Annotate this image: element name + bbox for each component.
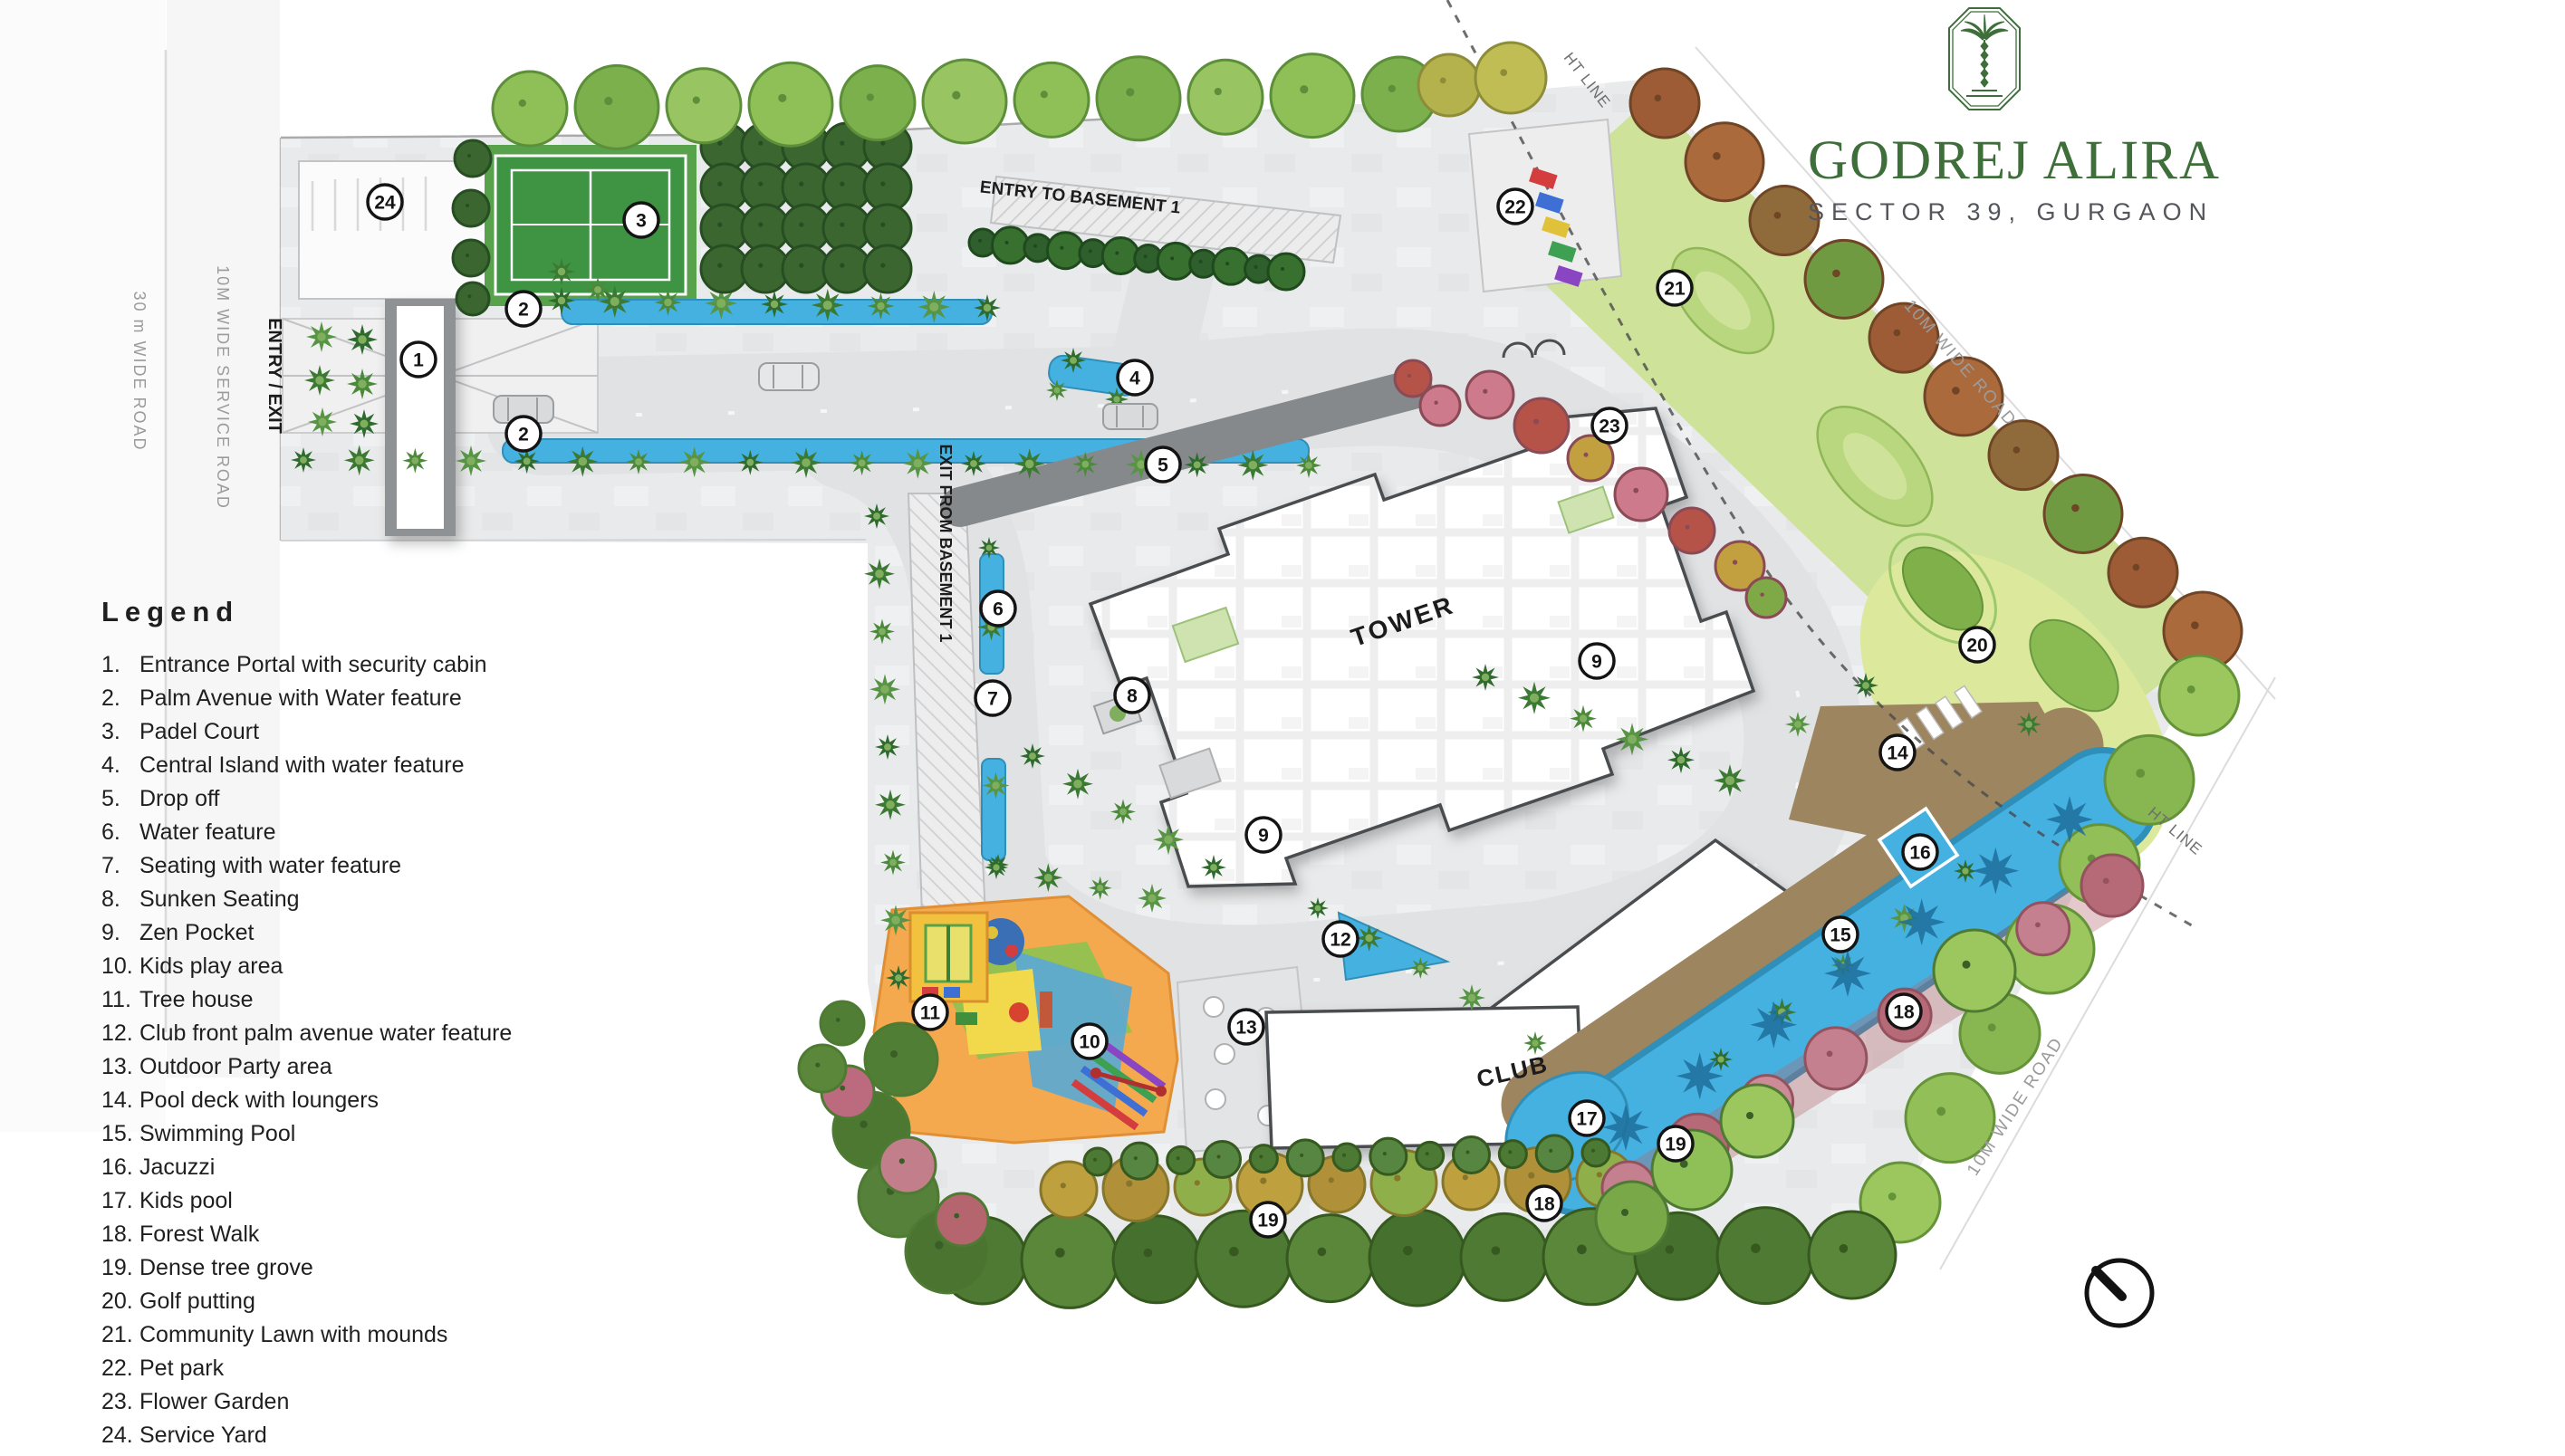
legend-item-number: 22. — [101, 1352, 139, 1385]
pool-palm-shadow — [1750, 1001, 1797, 1049]
legend-item-number: 16. — [101, 1151, 139, 1184]
plan-marker-1: 1 — [401, 342, 436, 377]
round-tree — [2109, 538, 2177, 607]
legend-item: 3.Padel Court — [101, 715, 572, 749]
svg-text:1: 1 — [413, 350, 424, 371]
round-tree — [992, 227, 1028, 263]
svg-text:17: 17 — [1576, 1109, 1597, 1130]
svg-text:20: 20 — [1966, 636, 1987, 656]
round-tree — [799, 1045, 846, 1092]
legend-item-number: 19. — [101, 1251, 139, 1285]
legend-item-number: 23. — [101, 1385, 139, 1419]
round-tree — [821, 1001, 864, 1045]
pool-palm-shadow — [1898, 898, 1945, 945]
plan-marker-20: 20 — [1960, 627, 1994, 662]
round-tree — [493, 72, 567, 146]
plan-marker-14: 14 — [1880, 735, 1915, 770]
round-tree — [575, 65, 658, 148]
svg-text:6: 6 — [993, 599, 1004, 620]
plan-marker-2: 2 — [506, 292, 541, 326]
legend-item: 17.Kids pool — [101, 1184, 572, 1218]
legend-item-label: Dense tree grove — [139, 1251, 313, 1285]
plan-marker-13: 13 — [1229, 1010, 1263, 1044]
legend-item: 15.Swimming Pool — [101, 1117, 572, 1151]
legend-item-label: Padel Court — [139, 715, 259, 749]
legend-item-label: Swimming Pool — [139, 1117, 295, 1151]
legend-item: 4.Central Island with water feature — [101, 749, 572, 782]
legend-item-number: 2. — [101, 682, 139, 715]
legend-item-number: 9. — [101, 916, 139, 950]
round-tree — [1418, 54, 1480, 116]
legend-item-number: 24. — [101, 1419, 139, 1452]
car-icon — [1103, 404, 1158, 429]
plan-marker-9: 9 — [1246, 818, 1281, 852]
legend-item-number: 6. — [101, 816, 139, 849]
plan-marker-18: 18 — [1527, 1186, 1561, 1221]
legend-item-label: Kids pool — [139, 1184, 233, 1218]
legend-panel: Legend 1.Entrance Portal with security c… — [101, 596, 572, 1452]
plan-marker-17: 17 — [1570, 1101, 1604, 1135]
legend-item-number: 10. — [101, 950, 139, 983]
round-tree — [841, 66, 915, 140]
legend-item-label: Forest Walk — [139, 1218, 259, 1251]
label-road-service: 10M WIDE SERVICE ROAD — [214, 265, 232, 510]
svg-text:5: 5 — [1158, 455, 1168, 476]
round-tree — [1158, 243, 1194, 279]
car-icon — [759, 363, 819, 390]
legend-item-number: 12. — [101, 1017, 139, 1050]
pool-palm-shadow — [1676, 1052, 1724, 1099]
legend-item-label: Tree house — [139, 983, 254, 1017]
legend-item-label: Kids play area — [139, 950, 283, 983]
svg-text:14: 14 — [1887, 743, 1908, 764]
plan-marker-12: 12 — [1323, 922, 1358, 956]
svg-text:8: 8 — [1127, 686, 1138, 707]
round-tree — [1499, 1141, 1526, 1168]
round-tree — [1596, 1182, 1668, 1254]
round-tree — [1167, 1146, 1195, 1173]
round-tree — [1536, 1135, 1572, 1172]
label-road-30m: 30 m WIDE ROAD — [130, 291, 149, 451]
round-tree — [1395, 360, 1431, 397]
round-tree — [1271, 54, 1354, 138]
plan-marker-10: 10 — [1072, 1024, 1107, 1058]
round-tree — [456, 283, 489, 315]
plan-marker-11: 11 — [913, 995, 947, 1030]
brand-location: SECTOR 39, GURGAON — [1808, 198, 2161, 226]
site-plan-page: 30 m WIDE ROAD 10M WIDE SERVICE ROAD ENT… — [0, 0, 2565, 1456]
legend-item: 19.Dense tree grove — [101, 1251, 572, 1285]
legend-title: Legend — [101, 596, 572, 628]
svg-text:10: 10 — [1079, 1032, 1100, 1053]
plan-marker-18: 18 — [1887, 994, 1921, 1029]
label-entry-exit: ENTRY / EXIT — [264, 318, 284, 434]
legend-item-label: Central Island with water feature — [139, 749, 465, 782]
round-tree — [1268, 254, 1304, 290]
svg-text:19: 19 — [1257, 1211, 1278, 1231]
pool-palm-shadow — [1824, 950, 1871, 997]
plan-marker-4: 4 — [1118, 360, 1152, 395]
legend-item: 1.Entrance Portal with security cabin — [101, 648, 572, 682]
legend-item-label: Seating with water feature — [139, 849, 401, 883]
legend-item-number: 20. — [101, 1285, 139, 1318]
legend-item-label: Palm Avenue with Water feature — [139, 682, 462, 715]
legend-item-label: Zen Pocket — [139, 916, 254, 950]
round-tree — [1084, 1148, 1111, 1175]
round-tree — [1461, 1213, 1548, 1300]
round-tree — [1475, 43, 1546, 113]
legend-item: 20.Golf putting — [101, 1285, 572, 1318]
legend-item-number: 11. — [101, 983, 139, 1017]
legend-item: 13.Outdoor Party area — [101, 1050, 572, 1084]
legend-item-label: Golf putting — [139, 1285, 255, 1318]
round-tree — [1022, 1212, 1118, 1308]
legend-item: 14.Pool deck with loungers — [101, 1084, 572, 1117]
round-tree — [1466, 371, 1513, 418]
svg-text:24: 24 — [374, 193, 396, 214]
round-tree — [1514, 398, 1569, 453]
legend-item-number: 18. — [101, 1218, 139, 1251]
round-tree — [1369, 1210, 1465, 1306]
legend-item-number: 13. — [101, 1050, 139, 1084]
legend-item-label: Pet park — [139, 1352, 224, 1385]
round-tree — [936, 1193, 988, 1246]
legend-item: 9.Zen Pocket — [101, 916, 572, 950]
round-tree — [2044, 474, 2122, 552]
round-tree — [749, 62, 832, 146]
palm-tree-octagon-icon — [1946, 5, 2022, 112]
legend-item-number: 8. — [101, 883, 139, 916]
round-tree — [1287, 1140, 1323, 1176]
plan-marker-2: 2 — [506, 417, 541, 451]
svg-text:2: 2 — [518, 425, 529, 445]
round-tree — [1213, 248, 1249, 284]
pool-palm-shadow — [1972, 848, 2019, 895]
brand-logo: GODREJ ALIRA SECTOR 39, GURGAON — [1808, 5, 2161, 226]
legend-item-label: Drop off — [139, 782, 219, 816]
plan-marker-6: 6 — [981, 591, 1015, 626]
round-tree — [865, 1023, 937, 1096]
svg-text:15: 15 — [1830, 925, 1851, 946]
round-tree — [2081, 855, 2143, 916]
round-tree — [2159, 656, 2239, 735]
legend-item: 11.Tree house — [101, 983, 572, 1017]
round-tree — [1102, 238, 1138, 274]
pool-palm-shadow — [2046, 796, 2093, 843]
round-tree — [1417, 1142, 1444, 1169]
legend-item: 18.Forest Walk — [101, 1218, 572, 1251]
plan-marker-24: 24 — [368, 185, 402, 219]
round-tree — [1582, 1139, 1609, 1166]
legend-item-label: Outdoor Party area — [139, 1050, 332, 1084]
legend-item: 22.Pet park — [101, 1352, 572, 1385]
round-tree — [1805, 1028, 1867, 1089]
round-tree — [1669, 508, 1715, 553]
plan-marker-23: 23 — [1592, 408, 1627, 443]
legend-item-number: 4. — [101, 749, 139, 782]
legend-item-number: 17. — [101, 1184, 139, 1218]
legend-item-label: Club front palm avenue water feature — [139, 1017, 512, 1050]
legend-item-label: Pool deck with loungers — [139, 1084, 379, 1117]
legend-item-number: 1. — [101, 648, 139, 682]
plan-marker-19: 19 — [1658, 1126, 1693, 1161]
plan-marker-7: 7 — [975, 681, 1010, 715]
svg-text:12: 12 — [1330, 930, 1350, 951]
legend-item-number: 21. — [101, 1318, 139, 1352]
round-tree — [453, 190, 489, 226]
svg-text:11: 11 — [920, 1003, 941, 1024]
round-tree — [667, 69, 741, 143]
round-tree — [1333, 1144, 1360, 1171]
seating-water-feature — [982, 759, 1005, 860]
svg-text:2: 2 — [518, 300, 529, 321]
round-tree — [2017, 903, 2070, 955]
round-tree — [1014, 62, 1089, 137]
round-tree — [1934, 930, 2015, 1011]
svg-text:13: 13 — [1235, 1018, 1256, 1039]
legend-item-number: 5. — [101, 782, 139, 816]
round-tree — [1121, 1143, 1158, 1179]
round-tree — [1615, 468, 1667, 521]
plan-marker-16: 16 — [1903, 835, 1937, 869]
legend-item: 5.Drop off — [101, 782, 572, 816]
legend-item-label: Service Yard — [139, 1419, 267, 1452]
round-tree — [879, 1137, 936, 1193]
svg-text:19: 19 — [1665, 1135, 1686, 1155]
legend-item: 21.Community Lawn with mounds — [101, 1318, 572, 1352]
legend-items: 1.Entrance Portal with security cabin2.P… — [101, 648, 572, 1452]
svg-text:9: 9 — [1591, 652, 1602, 673]
svg-text:16: 16 — [1909, 843, 1930, 864]
svg-text:22: 22 — [1504, 197, 1525, 218]
round-tree — [1805, 240, 1883, 318]
round-tree — [1113, 1216, 1200, 1303]
legend-item-number: 15. — [101, 1117, 139, 1151]
legend-item: 2.Palm Avenue with Water feature — [101, 682, 572, 715]
legend-item-label: Entrance Portal with security cabin — [139, 648, 487, 682]
entrance-portal — [385, 299, 456, 536]
round-tree — [1287, 1215, 1374, 1302]
plan-marker-3: 3 — [624, 203, 658, 237]
legend-item: 24.Service Yard — [101, 1419, 572, 1452]
plan-marker-5: 5 — [1146, 447, 1180, 482]
round-tree — [1989, 421, 2058, 490]
svg-text:21: 21 — [1664, 279, 1686, 300]
legend-item: 23.Flower Garden — [101, 1385, 572, 1419]
round-tree — [1717, 1208, 1813, 1304]
round-tree — [1047, 233, 1083, 269]
round-tree — [923, 60, 1006, 143]
round-tree — [1746, 578, 1786, 618]
north-arrow-compass — [2087, 1260, 2152, 1326]
round-tree — [1686, 123, 1763, 201]
svg-text:23: 23 — [1599, 417, 1619, 437]
plan-marker-19: 19 — [1251, 1202, 1285, 1237]
plan-marker-15: 15 — [1823, 917, 1858, 952]
pool-palm-shadow — [1602, 1104, 1649, 1151]
round-tree — [1809, 1212, 1896, 1298]
legend-item-number: 14. — [101, 1084, 139, 1117]
legend-item-number: 3. — [101, 715, 139, 749]
round-tree — [864, 245, 911, 292]
site-inner-edge — [281, 540, 866, 541]
legend-item: 12.Club front palm avenue water feature — [101, 1017, 572, 1050]
round-tree — [1454, 1137, 1490, 1173]
svg-text:9: 9 — [1258, 826, 1269, 847]
svg-text:7: 7 — [987, 689, 998, 710]
plan-marker-22: 22 — [1498, 189, 1532, 224]
legend-item-label: Community Lawn with mounds — [139, 1318, 447, 1352]
round-tree — [1205, 1142, 1241, 1178]
round-tree — [1097, 57, 1180, 140]
svg-text:18: 18 — [1893, 1002, 1915, 1023]
legend-item-label: Sunken Seating — [139, 883, 300, 916]
plan-marker-21: 21 — [1657, 271, 1692, 305]
plan-marker-9: 9 — [1580, 644, 1614, 678]
legend-item-label: Flower Garden — [139, 1385, 289, 1419]
round-tree — [453, 240, 489, 276]
legend-item: 10.Kids play area — [101, 950, 572, 983]
legend-item: 8.Sunken Seating — [101, 883, 572, 916]
svg-text:4: 4 — [1129, 369, 1140, 389]
round-tree — [1630, 69, 1699, 138]
legend-item: 6.Water feature — [101, 816, 572, 849]
label-exit-basement: EXIT FROM BASEMENT 1 — [937, 444, 955, 642]
round-tree — [455, 140, 491, 177]
round-tree — [1188, 60, 1263, 134]
round-tree — [1721, 1085, 1793, 1157]
plan-marker-8: 8 — [1115, 678, 1149, 713]
legend-item: 16.Jacuzzi — [101, 1151, 572, 1184]
legend-item-label: Jacuzzi — [139, 1151, 215, 1184]
round-tree — [1250, 1145, 1277, 1173]
svg-text:3: 3 — [636, 211, 647, 232]
legend-item-label: Water feature — [139, 816, 276, 849]
svg-text:18: 18 — [1533, 1194, 1555, 1215]
legend-item-number: 7. — [101, 849, 139, 883]
tree-house — [910, 913, 987, 1001]
legend-item: 7.Seating with water feature — [101, 849, 572, 883]
brand-name: GODREJ ALIRA — [1808, 129, 2161, 193]
round-tree — [1370, 1138, 1407, 1174]
